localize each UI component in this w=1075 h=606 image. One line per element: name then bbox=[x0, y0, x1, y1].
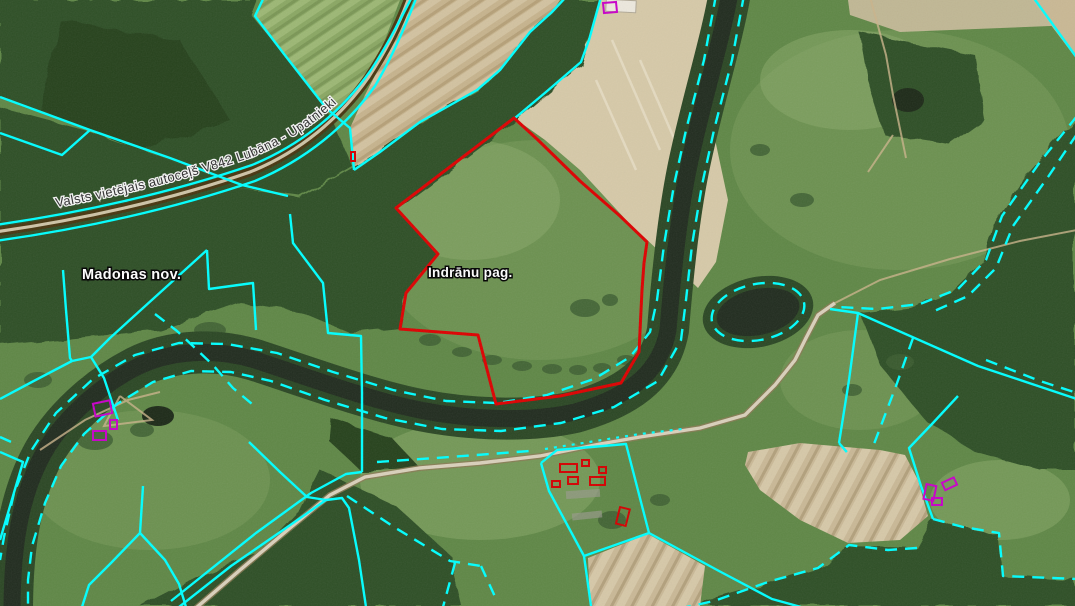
map-canvas[interactable]: Valsts vietējais autoceļš V842 Lubāna - … bbox=[0, 0, 1075, 606]
map-viewport[interactable]: Valsts vietējais autoceļš V842 Lubāna - … bbox=[0, 0, 1075, 606]
orthophoto-grain bbox=[0, 0, 1075, 606]
